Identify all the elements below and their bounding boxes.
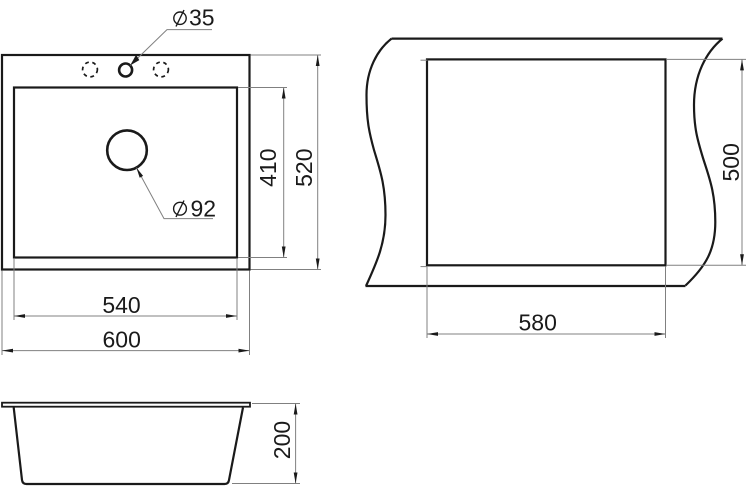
- svg-text:410: 410: [255, 149, 281, 187]
- svg-text:540: 540: [102, 292, 140, 318]
- svg-text:600: 600: [103, 327, 141, 353]
- svg-text:35: 35: [189, 5, 215, 31]
- svg-text:92: 92: [191, 196, 217, 222]
- svg-text:580: 580: [519, 310, 557, 336]
- svg-text:520: 520: [291, 149, 317, 187]
- svg-text:200: 200: [269, 421, 295, 459]
- svg-text:500: 500: [718, 143, 744, 181]
